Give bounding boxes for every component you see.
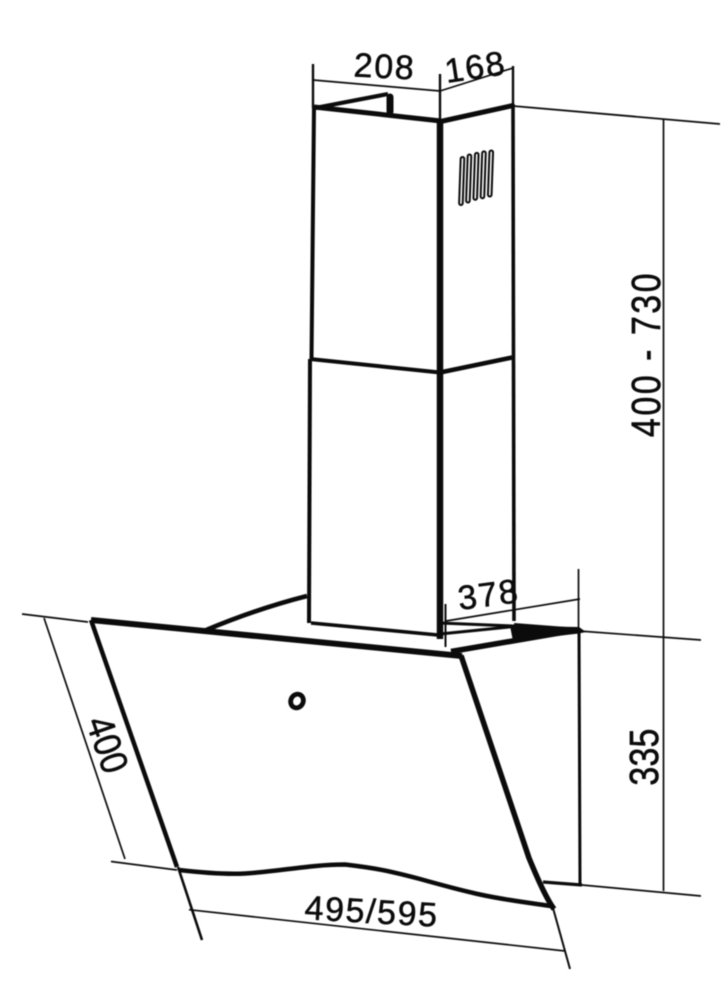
svg-text:335: 335 [621, 728, 667, 785]
svg-text:208: 208 [353, 46, 416, 87]
svg-text:378: 378 [456, 572, 522, 618]
svg-text:495/595: 495/595 [304, 889, 440, 935]
svg-text:400 - 730: 400 - 730 [623, 271, 669, 437]
